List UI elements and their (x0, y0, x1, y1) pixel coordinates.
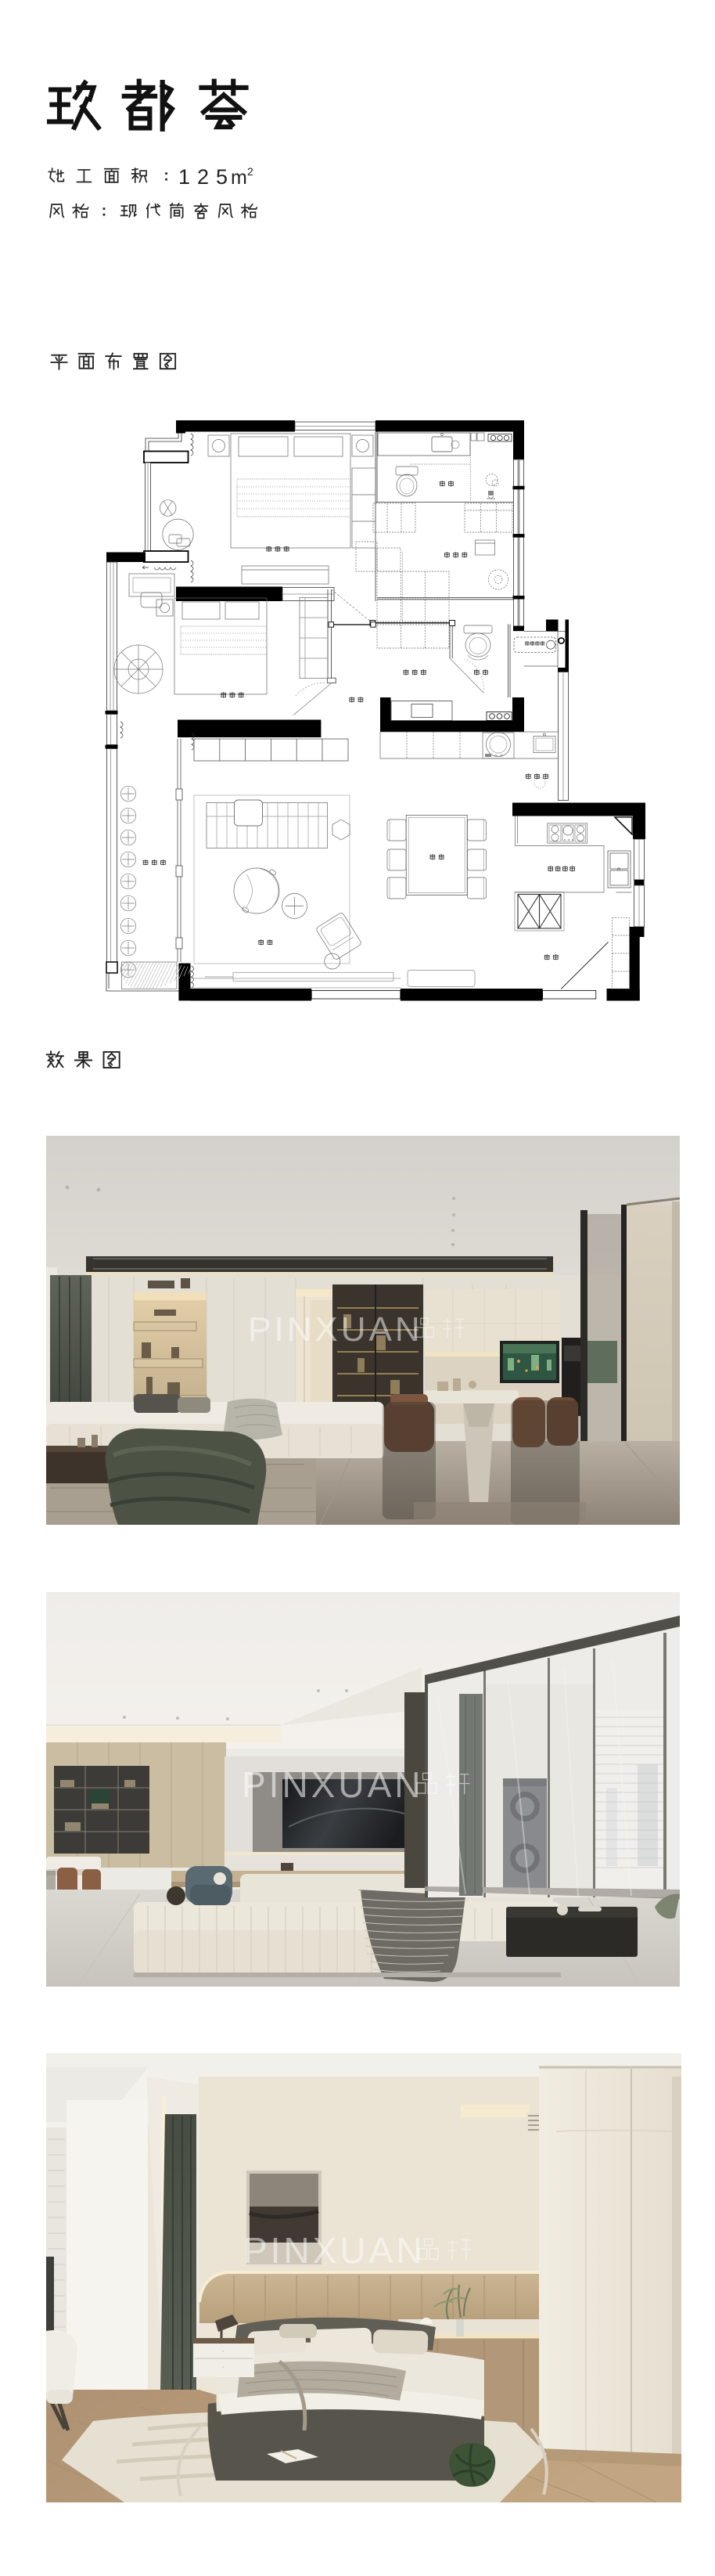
svg-text:PINXUAN: PINXUAN (243, 2230, 425, 2271)
svg-text:PINXUAN: PINXUAN (248, 1310, 423, 1349)
svg-text:PINXUAN: PINXUAN (242, 1764, 423, 1805)
